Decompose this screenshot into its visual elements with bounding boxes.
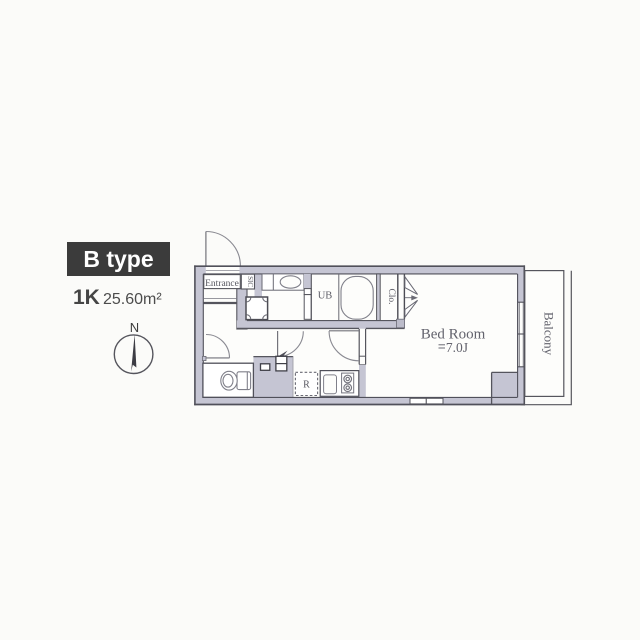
svg-text:R: R xyxy=(303,380,310,391)
svg-text:Entrance: Entrance xyxy=(205,279,239,289)
svg-text:SIC: SIC xyxy=(246,276,254,287)
svg-text:7.0J: 7.0J xyxy=(446,340,468,355)
svg-text:1K: 1K xyxy=(73,286,100,309)
svg-text:B type: B type xyxy=(83,246,153,272)
svg-text:N: N xyxy=(130,320,139,335)
svg-text:Balcony: Balcony xyxy=(542,312,557,356)
svg-text:UB: UB xyxy=(318,291,333,302)
svg-text:25.60m²: 25.60m² xyxy=(103,291,162,308)
svg-text:Clo.: Clo. xyxy=(386,288,396,304)
